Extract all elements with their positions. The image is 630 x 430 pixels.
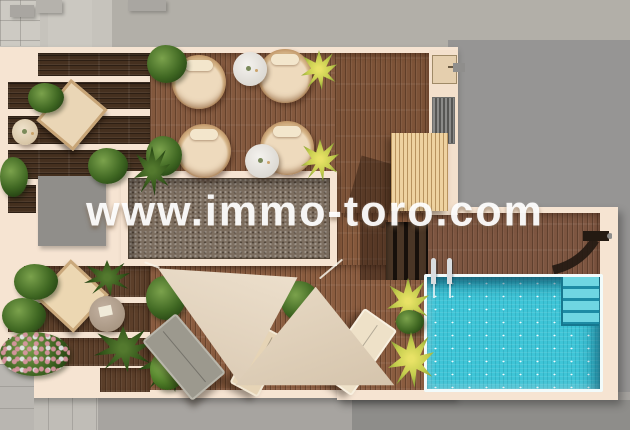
- rooftop-terrace-render: www.immo-toro.com: [0, 0, 630, 430]
- watermark-text: www.immo-toro.com: [86, 188, 544, 237]
- pool-ladder-icon: [431, 258, 436, 284]
- planter-strip: [38, 53, 150, 76]
- planter-strip: [100, 368, 150, 392]
- roof-vent-icon: [36, 0, 62, 13]
- pool-corner-steps: [561, 277, 599, 326]
- roof-vent-icon: [10, 5, 34, 17]
- pool-ladder-rail: [449, 284, 451, 298]
- roof-vent-icon: [128, 0, 166, 11]
- pool-ladder-icon: [447, 258, 452, 284]
- white-side-table: [245, 144, 279, 178]
- wicker-armchair: [177, 124, 231, 178]
- pool-ladder-rail: [433, 284, 435, 298]
- low-table: [12, 119, 38, 145]
- street-dark-slab: [352, 400, 630, 430]
- white-side-table: [233, 52, 267, 86]
- outdoor-shower: [550, 226, 612, 274]
- wall-drain-icon: [453, 63, 465, 72]
